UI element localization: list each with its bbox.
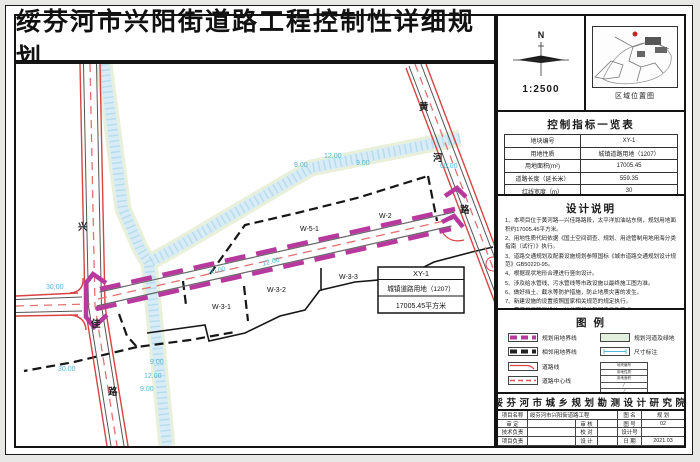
road-name-char: 路 xyxy=(460,204,470,216)
field-value xyxy=(598,428,618,437)
field-label: 审 核 xyxy=(576,420,598,429)
road-name-char: 黄 xyxy=(419,101,429,113)
institute-name: 绥芬河市城乡规划勘测设计研究院 xyxy=(498,394,684,411)
row-label: 地块编号 xyxy=(505,135,581,147)
dim-label: 12.00 xyxy=(324,153,342,160)
field-label: 设计号 xyxy=(618,428,642,437)
note-item: 1、本项目位于黄河路—兴佳路路段，太平洋加油站东侧，规划用地面积约17005.4… xyxy=(505,217,679,234)
plot-label-w31: W-3-1 xyxy=(212,304,231,311)
note-item: 6、做好挡土、截水等防护措施，防止地质灾害的发生。 xyxy=(505,289,679,298)
design-notes-list: 1、本项目位于黄河路—兴佳路路段，太平洋加油站东侧，规划用地面积约17005.4… xyxy=(505,217,679,310)
indicator-table-title: 控制指标一览表 xyxy=(498,112,684,132)
field-value xyxy=(598,420,618,429)
date-value: 2021.03 xyxy=(642,437,684,446)
indicator-table: 地块编号 XY-1 用地性质 城镇道路用地（1207） 用地面积(m²) 170… xyxy=(504,134,678,196)
plot-label-w32: W-3-2 xyxy=(267,287,286,294)
road-name-char: 佳 xyxy=(91,318,101,330)
field-label: 校 对 xyxy=(576,428,598,437)
callout-use: 城镇道路用地（1207） xyxy=(387,284,454,293)
legend-item: 相邻用地界线 xyxy=(508,347,600,357)
north-arrow-icon xyxy=(513,40,569,80)
title-bar: 绥芬河市兴阳街道路工程控制性详细规划 xyxy=(14,14,496,62)
legend-title: 图 例 xyxy=(498,310,684,330)
dim-label: 9.00 xyxy=(140,386,154,393)
stream xyxy=(104,64,460,446)
legend-columns: 规划用地界线 相邻用地界线 道路线 xyxy=(508,332,678,394)
road-line-swatch xyxy=(508,362,538,371)
location-map-cell: 区域位置图 xyxy=(586,16,684,110)
legend-item: 道路线 xyxy=(508,361,600,371)
project-name: 绥芬河市兴阳街道路工程 xyxy=(528,411,618,420)
row-label: 道路长度（延长米） xyxy=(505,173,581,185)
field-label: 图 号 xyxy=(618,420,642,429)
table-row: 用地面积(m²) 17005.45 xyxy=(505,159,677,172)
sheet-number: 02 xyxy=(642,420,684,429)
planning-boundary-swatch xyxy=(508,333,538,342)
road-name-char: 河 xyxy=(433,152,443,164)
compass-cell: N 1:2500 xyxy=(498,16,586,110)
drawing-sheet: 绥芬河市兴阳街道路工程控制性详细规划 xyxy=(5,5,693,455)
dim-label: 30.00 xyxy=(46,284,64,291)
sheet-name: 规 划 xyxy=(642,411,684,420)
field-value xyxy=(528,420,576,429)
dim-label: 9.00 xyxy=(294,162,308,169)
legend-right-column: 规划河道及绿地 尺寸标注 地块编号 用地性质 用地面积 ╱ ╱ xyxy=(600,332,678,394)
legend-section: 图 例 规划用地界线 相邻用地界线 xyxy=(498,310,684,394)
location-map-sketch xyxy=(593,27,677,87)
note-item: 3、道路交通规划及配套设施规划参照国标《城市道路交通规划设计规范》GB50220… xyxy=(505,253,679,270)
row-label: 用地面积(m²) xyxy=(505,160,581,172)
dim-label: 30.00 xyxy=(58,366,76,373)
table-row: 地块编号 XY-1 xyxy=(505,135,677,147)
legend-label: 道路线 xyxy=(542,362,559,371)
field-label: 技术负责 xyxy=(498,428,528,437)
legend-item: 规划用地界线 xyxy=(508,332,600,342)
field-label: 项目负责 xyxy=(498,437,528,446)
design-number xyxy=(642,428,684,437)
plot-label-w51: W-5-1 xyxy=(300,226,319,233)
table-row: 用地性质 城镇道路用地（1207） xyxy=(505,147,677,160)
adjacent-boundary-swatch xyxy=(508,347,538,356)
road-centerline-swatch xyxy=(508,376,538,385)
field-label: 审 定 xyxy=(498,420,528,429)
row-label: 用地性质 xyxy=(505,148,581,160)
site-marker-dot xyxy=(633,31,638,36)
compass-location-section: N 1:2500 xyxy=(498,16,684,112)
road-name-char: 路 xyxy=(108,386,118,398)
row-value: 559.35 xyxy=(581,173,677,185)
row-value: 城镇道路用地（1207） xyxy=(581,148,677,160)
note-item: 5、涉及给水管线、污水管线等市政设施以最终施工图为准。 xyxy=(505,280,679,289)
indicator-section: 控制指标一览表 地块编号 XY-1 用地性质 城镇道路用地（1207） 用地面积… xyxy=(498,112,684,196)
callout-area: 17005.45平方米 xyxy=(396,301,446,310)
row-label: 红线宽度（m） xyxy=(505,185,581,196)
field-label: 项目名称 xyxy=(498,411,528,420)
legend-label: 相邻用地界线 xyxy=(542,347,577,356)
title-block-grid: 项目名称 绥芬河市兴阳街道路工程 图 名 规 划 审 定 审 核 图 号 02 … xyxy=(498,411,684,446)
dimension-swatch xyxy=(600,347,630,356)
plan-map: 30.00 30.00 9.00 12.00 9.00 9.00 12.00 9… xyxy=(16,64,494,446)
dim-label: 12.00 xyxy=(144,373,162,380)
legend-label: 尺寸标注 xyxy=(634,347,657,356)
row-value: 30 xyxy=(581,185,677,196)
legend-left-column: 规划用地界线 相邻用地界线 道路线 xyxy=(508,332,600,394)
table-row: 道路长度（延长米） 559.35 xyxy=(505,172,677,185)
field-value xyxy=(528,437,576,446)
plan-map-area: 30.00 30.00 9.00 12.00 9.00 9.00 12.00 9… xyxy=(14,62,496,448)
field-label: 设 计 xyxy=(576,437,598,446)
design-notes-title: 设计说明 xyxy=(498,196,684,216)
row-value: 17005.45 xyxy=(581,160,677,172)
north-label: N xyxy=(538,31,545,40)
field-label: 日 期 xyxy=(618,437,642,446)
dim-label: 9.00 xyxy=(356,160,370,167)
note-item: 2、用地性质代码依据《国土空间调查、规划、用途管制用地用海分类指南（试行）》执行… xyxy=(505,235,679,252)
plot-callout: XY-1 城镇道路用地（1207） 17005.45平方米 xyxy=(378,267,464,313)
green-area-swatch xyxy=(600,333,630,342)
location-map-image xyxy=(592,26,678,88)
note-item: 4、根据现状地形合理进行竖向设计。 xyxy=(505,270,679,279)
location-map-caption: 区域位置图 xyxy=(615,91,655,101)
note-item: 7、新建设施的设置按照国家相关规范的规定执行。 xyxy=(505,298,679,307)
road-name-char: 兴 xyxy=(78,221,88,233)
scale-label: 1:2500 xyxy=(522,84,559,95)
callout-code: XY-1 xyxy=(413,269,429,278)
design-notes-section: 设计说明 1、本项目位于黄河路—兴佳路路段，太平洋加油站东侧，规划用地面积约17… xyxy=(498,196,684,310)
title-block: 绥芬河市城乡规划勘测设计研究院 项目名称 绥芬河市兴阳街道路工程 图 名 规 划… xyxy=(498,394,684,446)
sidebar: N 1:2500 xyxy=(496,14,686,448)
plot-label-w33: W-3-3 xyxy=(339,274,358,281)
table-row: 红线宽度（m） 30 xyxy=(505,184,677,196)
dim-label: 60.00 xyxy=(440,163,458,170)
plot-label-w2: W-2 xyxy=(379,213,392,220)
legend-item: 尺寸标注 xyxy=(600,347,678,357)
plot-indicator-symbol: 地块编号 用地性质 用地面积 ╱ ╱ xyxy=(600,362,648,394)
field-value xyxy=(528,428,576,437)
legend-item: 道路中心线 xyxy=(508,376,600,386)
legend-label: 规划用地界线 xyxy=(542,333,577,342)
legend-label: 规划河道及绿地 xyxy=(634,333,675,342)
row-value: XY-1 xyxy=(581,135,677,147)
field-value xyxy=(598,437,618,446)
legend-label: 道路中心线 xyxy=(542,376,571,385)
field-label: 图 名 xyxy=(618,411,642,420)
legend-item: 规划河道及绿地 xyxy=(600,332,678,342)
dim-label: 9.00 xyxy=(150,359,164,366)
